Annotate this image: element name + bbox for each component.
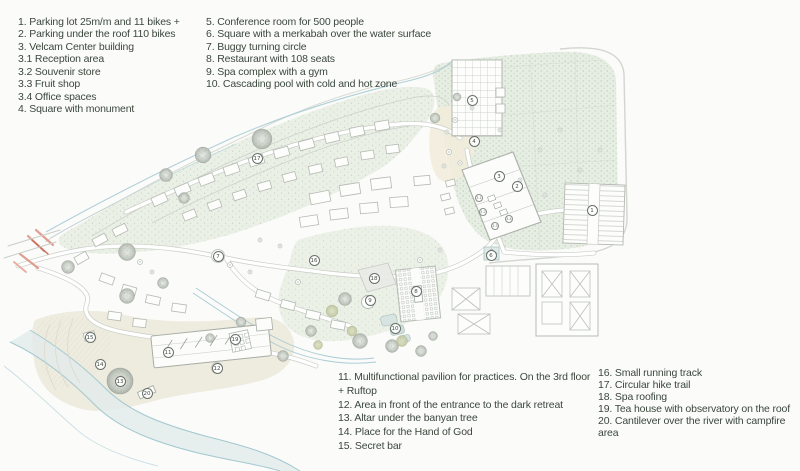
map-marker-3.3: 3.3	[491, 222, 499, 230]
map-marker-13: 13	[115, 376, 126, 387]
map-marker-9: 9	[365, 295, 376, 306]
map-marker-14: 14	[95, 359, 106, 370]
legend-top-left: 1. Parking lot 25m/m and 11 bikes + 2. P…	[18, 16, 180, 116]
map-marker-5: 5	[467, 95, 478, 106]
legend-item: 4. Square with monument	[18, 103, 180, 115]
legend-item: 11. Multifunctional pavilion for practic…	[338, 371, 594, 399]
map-marker-7: 7	[213, 251, 224, 262]
legend-item: 13. Altar under the banyan tree	[338, 412, 594, 426]
legend-bottom-right: 16. Small running track 17. Circular hik…	[598, 367, 790, 440]
map-marker-12: 12	[212, 363, 223, 374]
legend-item: 1. Parking lot 25m/m and 11 bikes +	[18, 16, 180, 28]
map-marker-20: 20	[142, 388, 153, 399]
legend-item: 3.3 Fruit shop	[18, 78, 180, 90]
legend-item: 20. Cantilever over the river with campf…	[598, 415, 790, 439]
legend-item: 8. Restaurant with 108 seats	[206, 53, 431, 65]
legend-item: 3.1 Reception area	[18, 53, 180, 65]
legend-item: 2. Parking under the roof 110 bikes	[18, 28, 180, 40]
site-plan: 12345678910111213141516171819203.13.23.3…	[0, 0, 800, 471]
legend-item: 3.2 Souvenir store	[18, 66, 180, 78]
map-marker-17: 17	[252, 153, 263, 164]
map-marker-3.1: 3.1	[475, 194, 483, 202]
legend-item: 15. Secret bar	[338, 440, 594, 454]
legend-item: 16. Small running track	[598, 367, 790, 379]
map-marker-1: 1	[587, 205, 598, 216]
map-marker-11: 11	[163, 347, 174, 358]
legend-item: 14. Place for the Hand of God	[338, 426, 594, 440]
map-marker-16: 16	[309, 255, 320, 266]
map-marker-10: 10	[390, 323, 401, 334]
map-marker-3: 3	[494, 171, 505, 182]
legend-item: 9. Spa complex with a gym	[206, 66, 431, 78]
legend-item: 3.4 Office spaces	[18, 91, 180, 103]
legend-item: 12. Area in front of the entrance to the…	[338, 399, 594, 413]
legend-item: 7. Buggy turning circle	[206, 41, 431, 53]
map-marker-3.2: 3.2	[479, 208, 487, 216]
map-marker-6: 6	[486, 250, 497, 261]
legend-item: 17. Circular hike trail	[598, 379, 790, 391]
map-marker-15: 15	[85, 332, 96, 343]
legend-item: 10. Cascading pool with cold and hot zon…	[206, 78, 431, 90]
map-marker-2: 2	[512, 181, 523, 192]
map-marker-4: 4	[469, 136, 480, 147]
legend-item: 3. Velcam Center building	[18, 41, 180, 53]
legend-bottom-middle: 11. Multifunctional pavilion for practic…	[338, 371, 594, 454]
legend-item: 6. Square with a merkabah over the water…	[206, 28, 431, 40]
legend-top-middle: 5. Conference room for 500 people 6. Squ…	[206, 16, 431, 91]
legend-item: 5. Conference room for 500 people	[206, 16, 431, 28]
map-marker-18: 18	[369, 273, 380, 284]
legend-item: 19. Tea house with observatory on the ro…	[598, 403, 790, 415]
legend-item: 18. Spa roofing	[598, 391, 790, 403]
map-marker-19: 19	[230, 334, 241, 345]
map-marker-3.4: 3.4	[505, 215, 513, 223]
map-marker-8: 8	[411, 286, 422, 297]
